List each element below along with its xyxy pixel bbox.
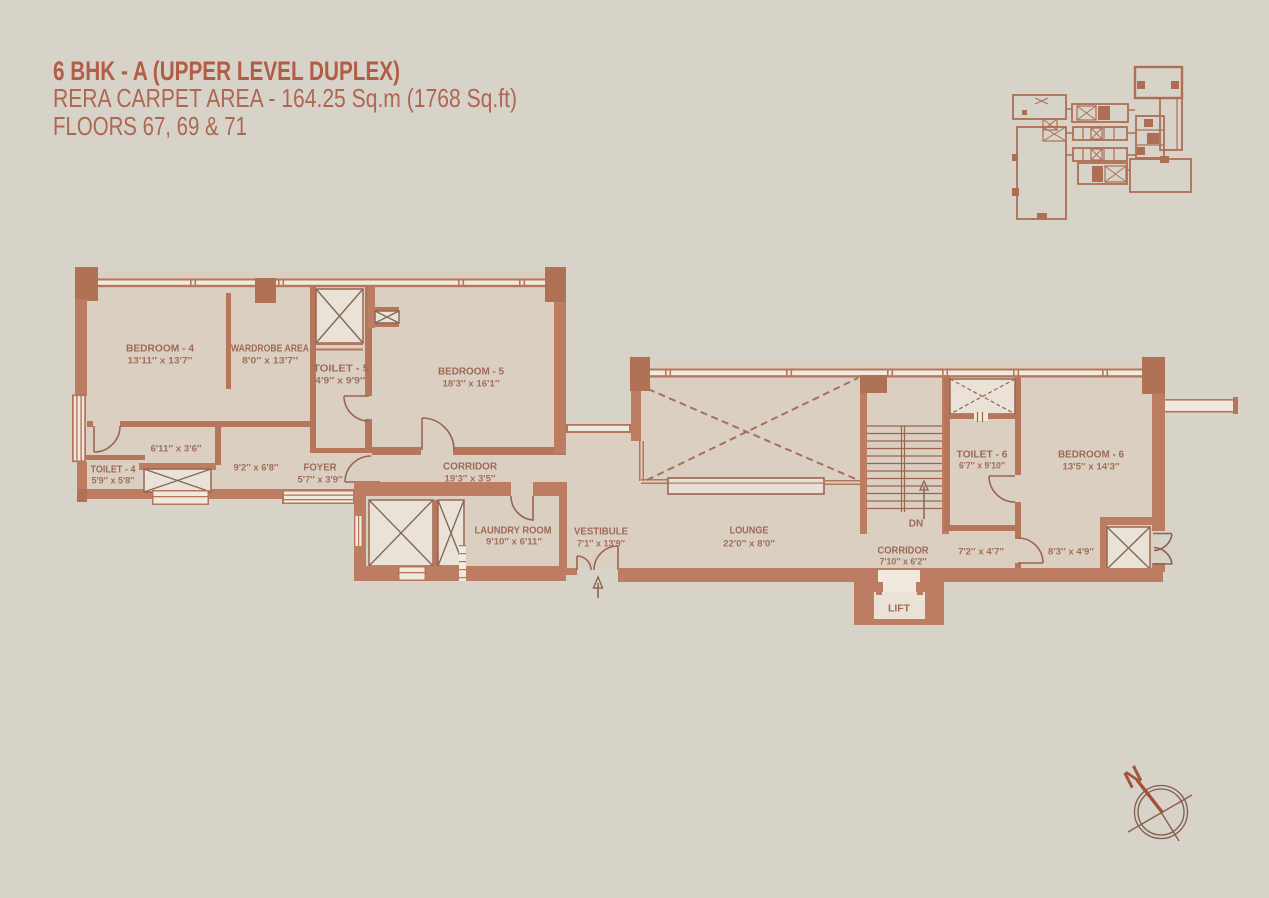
svg-text:CORRIDOR: CORRIDOR — [878, 546, 930, 557]
svg-text:18'3″ x 16'1″: 18'3″ x 16'1″ — [443, 379, 500, 390]
svg-text:TOILET - 4: TOILET - 4 — [91, 465, 136, 476]
svg-text:6 BHK - A (UPPER LEVEL DUPLEX): 6 BHK - A (UPPER LEVEL DUPLEX) — [53, 56, 400, 86]
svg-text:BEDROOM - 4: BEDROOM - 4 — [126, 344, 194, 355]
svg-text:6'7″ x 9'10″: 6'7″ x 9'10″ — [959, 461, 1005, 472]
svg-text:7'10″ x 6'2″: 7'10″ x 6'2″ — [880, 557, 927, 568]
svg-text:4'9″ x 9'9″: 4'9″ x 9'9″ — [315, 376, 365, 387]
svg-text:TOILET - 5: TOILET - 5 — [313, 364, 369, 375]
svg-text:FLOORS 67, 69 & 71: FLOORS 67, 69 & 71 — [53, 111, 247, 141]
svg-text:TOILET - 6: TOILET - 6 — [957, 450, 1008, 461]
svg-text:22'0″ x 8'0″: 22'0″ x 8'0″ — [723, 539, 775, 550]
svg-text:9'10″ x 6'11″: 9'10″ x 6'11″ — [486, 537, 542, 548]
svg-text:5'7″ x 3'9″: 5'7″ x 3'9″ — [298, 475, 343, 486]
svg-text:RERA CARPET AREA - 164.25 Sq.m: RERA CARPET AREA - 164.25 Sq.m (1768 Sq.… — [53, 83, 517, 113]
svg-text:BEDROOM - 6: BEDROOM - 6 — [1058, 450, 1124, 461]
svg-text:6'11″ x 3'6″: 6'11″ x 3'6″ — [151, 444, 202, 455]
svg-text:WARDROBE AREA: WARDROBE AREA — [231, 344, 309, 355]
svg-text:8'3″ x 4'9″: 8'3″ x 4'9″ — [1048, 547, 1094, 558]
svg-text:LAUNDRY ROOM: LAUNDRY ROOM — [475, 526, 552, 537]
svg-text:LOUNGE: LOUNGE — [730, 526, 769, 537]
svg-text:5'9″ x 5'8″: 5'9″ x 5'8″ — [92, 476, 135, 487]
svg-text:FOYER: FOYER — [304, 463, 338, 474]
svg-text:8'0″ x 13'7″: 8'0″ x 13'7″ — [242, 356, 298, 367]
svg-text:9'2″ x 6'8″: 9'2″ x 6'8″ — [234, 463, 279, 474]
svg-text:DN: DN — [909, 519, 923, 530]
svg-text:CORRIDOR: CORRIDOR — [443, 462, 498, 473]
svg-text:13'11″ x 13'7″: 13'11″ x 13'7″ — [128, 356, 193, 367]
svg-text:13'5″ x 14'3″: 13'5″ x 14'3″ — [1063, 462, 1120, 473]
svg-text:7'2″ x 4'7″: 7'2″ x 4'7″ — [958, 547, 1004, 558]
svg-text:VESTIBULE: VESTIBULE — [574, 527, 628, 538]
svg-text:7'1″ x 13'9″: 7'1″ x 13'9″ — [577, 539, 625, 550]
svg-text:19'3″ x 3'5″: 19'3″ x 3'5″ — [445, 474, 496, 485]
svg-text:LIFT: LIFT — [888, 604, 910, 615]
svg-text:BEDROOM - 5: BEDROOM - 5 — [438, 367, 504, 378]
